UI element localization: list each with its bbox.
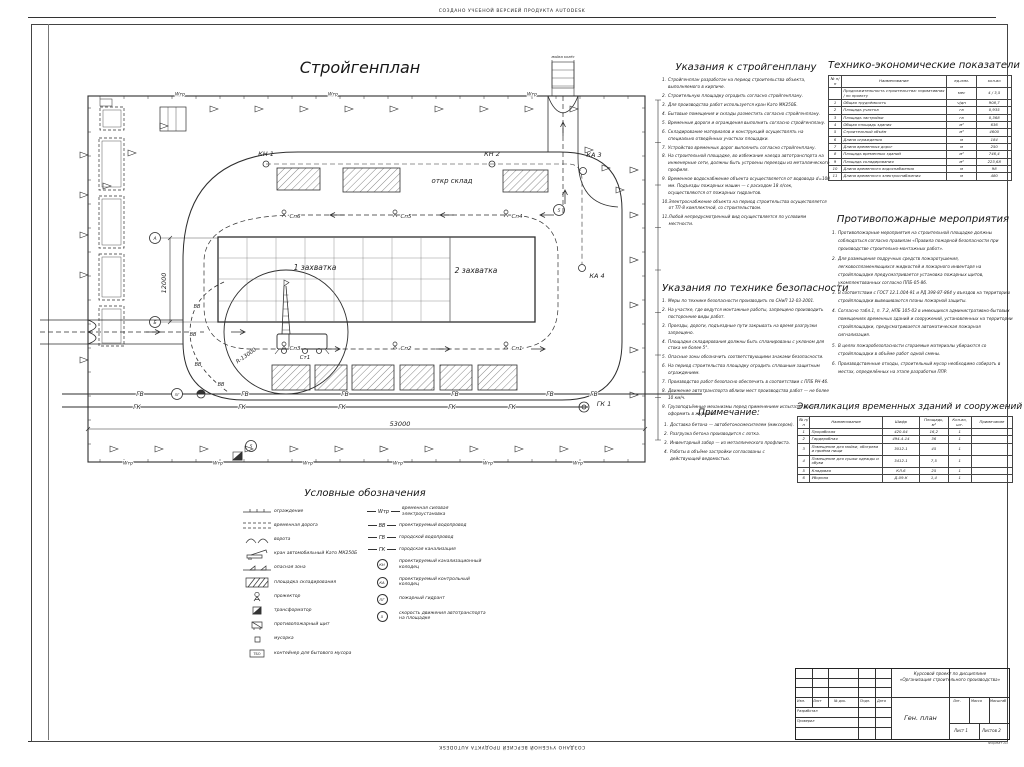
wtr-label: Wтр [527,92,537,98]
table-cell: 1 [798,429,810,436]
table-cell: га [946,114,977,121]
zone1-label: 1 захватка [294,263,337,272]
list-item: 6.Складирование материалов и конструкций… [662,129,830,143]
well-kn1-label: КН 1 [258,150,274,158]
legend-symbol: ПГ [365,594,399,605]
table-cell: 11 [829,173,842,180]
legend-label: ворота [274,537,290,543]
storage-icon [242,577,272,588]
table-cell: 1,4 [920,475,948,482]
legend-label: противопожарный щит [274,622,330,628]
temp-cabin-inner [102,257,121,297]
legend-item: КНпроектируемый канализационный колодец [365,559,490,570]
well-gk1-label: ГК 1 [597,400,611,408]
legend-symbol: ТБО [240,648,274,659]
ukazaniya-list: 1.Стройгенплан разработан на период стро… [662,77,830,228]
legend-label: городская канализация [399,547,456,553]
table-cell: 908,7 [977,100,1012,107]
legend-symbol [240,534,274,545]
table-row: 3Площадь застройкига0,368 [829,114,1012,121]
table-cell: Общая площадь здания [842,122,947,129]
table-cell: 25 [920,467,948,474]
table-cell: 250 [977,144,1012,151]
table-row: 10Длина временного водоснабжениям98 [829,166,1012,173]
table-cell: 16,2 [920,429,948,436]
transformer-fill [233,452,242,460]
well-kn2-label: КН 2 [484,150,500,158]
table-cell: 2 [798,436,810,443]
gv-label: ГВ [241,391,248,398]
table-row: 4Общая площадь зданиям²636 [829,122,1012,129]
table-cell: Площадь участка [842,107,947,114]
table-cell: 223,68 [977,158,1012,165]
floodlight-icon [242,591,272,602]
legend-code: ГВ [366,535,398,541]
table-cell: Уборная [810,475,882,482]
title-block: Изм. Лист № док. Подп. Дата Разработал П… [795,668,1010,740]
gk-label: ГК [508,404,516,411]
traffic-arrow [561,122,566,136]
legend-symbol [240,549,274,560]
dim-height-label: 12000 [160,273,168,294]
floodlight-icon [393,214,397,217]
wtr-label: Wтр [573,461,583,467]
table-cell: 184 [977,136,1012,143]
table-row: Продолжительность строительства: нормати… [829,88,1012,100]
explication-table: № п/пНаименованиеШифрПлощадь, м²Кол-во, … [797,416,1013,483]
legend-item: ПГпожарный гидрант [365,594,490,605]
waste-container-icon [100,99,112,106]
legend-code-circle: 5 [377,611,388,622]
legend: Условные обозначения ограждениевременная… [240,488,490,662]
temp-cabin-inner [102,199,121,245]
table-cell: 5 [829,129,842,136]
legend-item: ворота [240,534,365,545]
gv-label: ГВ [546,391,553,398]
gk-label: ГК [448,404,456,411]
legend-symbol: КН [365,559,399,570]
danger-zone-flag [80,192,88,198]
legend-symbol [240,506,274,517]
legend-label: проектируемый контрольный колодец [399,577,490,588]
table-cell [971,429,1012,436]
format-label: Формат А3 [938,741,1008,745]
legend-code-circle: КН [377,559,388,570]
legend-item: ВВпроектируемый водопровод [365,523,490,529]
legend-symbol: Wтр [365,509,402,515]
urn-icon [242,634,272,645]
floodlight-label: Сп1 [512,346,523,352]
table-row: 9Площадь складированиям²223,68 [829,158,1012,165]
danger-zone-flag [570,106,578,112]
stamp-podp: Подп. [860,699,870,703]
open-storage-label: откр склад [432,177,473,185]
list-item: 3.Инвентарный забор — из металлического … [664,440,794,447]
table-cell: 9 [829,158,842,165]
list-item: 7.Устройство временных дорог выполнить с… [662,145,830,152]
list-item: 11.Любой непредусмотренный вид осуществл… [662,214,830,228]
legend-code: Wтр [365,509,402,515]
stamp-ndoc: № док. [834,699,846,703]
legend-label: проектируемый водопровод [399,523,467,529]
axis-top-label: А [152,236,156,242]
table-cell: м² [946,122,977,129]
well-ka3-icon [580,168,587,175]
table-header-cell: Наименование [842,76,947,88]
gv-label: ГВ [341,391,348,398]
table-header-cell: ед.изм. [946,76,977,88]
table-cell: 1 [829,100,842,107]
danger-zone-flag [425,446,433,452]
list-item: 1.Противопожарные мероприятия на строите… [832,229,1014,253]
table-cell: м² [946,151,977,158]
legend-symbol: ГК [365,547,399,553]
danger-zone-flag [480,106,488,112]
traffic-arrow [440,213,454,218]
danger-zone-flag [525,106,533,112]
table-cell [971,436,1012,443]
zone2-label: 2 захватка [455,266,498,275]
list-item: 7.Производство работ безопасно обеспечит… [662,379,832,386]
legend-item: противопожарный щит [240,620,365,631]
crane-radius-label: R-13000 [235,347,258,366]
floodlight-icon [393,342,397,346]
storage-pad [400,365,434,390]
road-centerline [204,215,558,349]
danger-zone-flag [630,302,638,308]
list-item: 1.Стройгенплан разработан на период стро… [662,77,830,91]
table-cell: м [946,166,977,173]
storage-pad [343,168,400,192]
table-cell: Общая трудоёмкость [842,100,947,107]
temp-cabin [100,107,124,130]
table-cell: 4 [798,455,810,467]
temp-cabin [99,196,124,248]
legend-item: кран автомобильный Като МК250Б [240,549,365,560]
list-item: 6.Производственные отходы, строительный … [832,360,1014,376]
table-cell: м² [946,158,977,165]
storage-pad [352,365,394,390]
list-item: 1.Доставка бетона — автобетоносмесителем… [664,422,794,429]
legend-left-column: ограждениевременная дорогаворотакран авт… [240,506,365,662]
temp-cabin [99,138,124,190]
wheel-wash-label: мойка колёс [552,55,575,59]
table-row: 2Гардеробная494-4-14361 [798,436,1013,443]
table-cell: 1 [948,436,971,443]
legend-label: площадка складирования [274,580,336,586]
table-cell: 1 [948,443,971,455]
traffic-arrow [540,213,554,218]
table-cell: 3412-1 [882,455,919,467]
list-item: 5.Опасные зоны обозначить соответствующи… [662,354,832,361]
table-cell: Длина временного водоснабжения [842,166,947,173]
floodlight-icon [504,210,508,214]
safety-list: 1.Меры по технике безопасности производи… [662,298,832,417]
legend-item: ГВгородской водопровод [365,535,490,541]
table-cell: 3012-1 [882,443,919,455]
well-ka3-label: КА 3 [586,151,601,159]
table-header-cell: Наименование [810,417,882,429]
legend-item: опасная зона [240,563,365,574]
table-cell: м³ [946,129,977,136]
danger-zone-flag [630,392,638,398]
table-cell [829,88,842,100]
gv-label: ГВ [451,391,458,398]
vv-label: ВВ [195,362,202,368]
notes-list: 1.Доставка бетона — автобетоносмесителем… [664,422,794,463]
table-cell: 7,5 [920,455,948,467]
danger-zone-flag [80,232,88,238]
legend-code: ВВ [366,523,399,529]
table-cell: м [946,173,977,180]
panel-fire: Противопожарные мероприятия 1.Противопож… [832,214,1014,378]
table-row: 5Строительный объёмм³4600 [829,129,1012,136]
table-row: 7Длина временных дорогм250 [829,144,1012,151]
table-cell: Д-09-К [882,475,919,482]
legend-label: пожарный гидрант [399,596,445,602]
fire-hydrant-fill [197,390,205,394]
traffic-arrow [330,213,344,218]
table-cell: 45 [920,443,948,455]
wtr-label: Wтр [123,461,133,467]
table-cell: 3 [798,443,810,455]
danger-zone-flag [345,106,353,112]
legend-label: опасная зона [274,565,306,571]
wheel-wash-grate [552,70,574,86]
building-outline [218,237,535,322]
gk-label: ГК [338,404,346,411]
legend-label: мусорка [274,636,294,642]
danger-zone-flag [155,446,163,452]
legend-label: ограждение [274,509,303,515]
table-cell: 2 [829,107,842,114]
panel-tep: Технико-экономические показатели № п/пНа… [828,60,1012,181]
well-ka4-icon [579,265,586,272]
truck-crane-icon [275,280,329,354]
danger-zone-flag [630,347,638,353]
temp-cabin-inner [102,309,121,343]
table-cell: 5 [798,467,810,474]
legend-label: проектируемый канализационный колодец [399,559,490,570]
fire-shield-icon [242,620,272,631]
floodlight-icon [504,214,508,217]
gates-icon [242,534,272,545]
legend-item: трансформатор [240,605,365,616]
table-row: 6Длина ограждениям184 [829,136,1012,143]
table-cell [971,455,1012,467]
temp-cabin-inner [102,141,121,187]
stamp-project: Курсовой проект по дисциплине «Организац… [892,671,1008,684]
floodlight-label: Сп4 [512,214,523,220]
danger-zone-flag [290,446,298,452]
table-cell: Помещение для мойки, обогрева и приёма п… [810,443,882,455]
list-item: 8.На строительной площадке, во избежание… [662,153,830,173]
legend-item: ГКгородская канализация [365,547,490,553]
danger-zone-flag [80,357,88,363]
legend-symbol [240,577,274,588]
table-cell: 3 [829,114,842,121]
legend-symbol [240,634,274,645]
fence-icon [242,506,272,517]
table-header-cell: Кол-во, шт. [948,417,971,429]
list-item: 2.На участке, где ведутся монтажные рабо… [662,307,832,321]
danger-zone-flag [380,446,388,452]
table-cell: 4600 [977,129,1012,136]
legend-item: ТБОконтейнер для бытового мусора [240,648,365,659]
list-item: 2.Разгрузка бетона производится с лотка. [664,431,794,438]
legend-label: прожектор [274,594,300,600]
table-row: 2Площадь участкага0,935 [829,107,1012,114]
table-row: 4Помещение для сушки одежды и обуви3412-… [798,455,1013,467]
table-header-cell: № п/п [798,417,810,429]
danger-zone-flag [128,150,136,156]
table-cell: Площадь застройки [842,114,947,121]
table-header-cell: № п/п [829,76,842,88]
stamp-sheet: Лист 1 [954,728,968,733]
danger-zone-flag [300,106,308,112]
table-cell: 98 [977,166,1012,173]
wheel-wash-pad [552,62,574,88]
table-row: 5КладоваяКЛ-6251 [798,467,1013,474]
table-cell: 636 [977,122,1012,129]
table-cell: м [946,144,977,151]
traffic-arrow [231,330,245,335]
data-table: № п/пНаименованиеед.изм.кол-воПродолжите… [828,75,1012,181]
panel-ukazaniya: Указания к стройгенплану 1.Стройгенплан … [662,62,830,230]
floodlight-icon [282,210,286,214]
table-row: 6УборнаяД-09-К1,41 [798,475,1013,482]
stamp-izm: Изм. [797,699,805,703]
table-row: 1Общая трудоёмкостьч/дн908,7 [829,100,1012,107]
legend-label: кран автомобильный Като МК250Б [274,551,357,557]
storage-pad [315,365,347,390]
danger-zone-flag [200,446,208,452]
dim-width-label: 53000 [390,420,411,428]
container-code: ТБО [252,652,260,656]
panel-explication: Экспликация временных зданий и сооружени… [797,402,1013,483]
legend-item: ограждение [240,506,365,517]
legend-right-column: Wтрвременная силовая электроустановкаВВп… [365,506,490,662]
table-cell [971,443,1012,455]
list-item: 5.В целях пожаробезопасности сгораемые м… [832,342,1014,358]
danger-zone-flag [435,106,443,112]
table-cell: 1 [948,467,971,474]
stamp-lit: Лит. [953,699,961,703]
danger-icon [242,563,272,574]
danger-zone-flag [160,123,168,129]
list-item: 3.Для производства работ используется кр… [662,102,830,109]
table-cell: 0,368 [977,114,1012,121]
table-cell: Длина временного электроснабжения [842,173,947,180]
storage-pad [503,170,548,192]
axis-bottom-label: Б [153,320,156,326]
stamp-data: Дата [877,699,886,703]
table-cell: 480 [977,173,1012,180]
danger-zone-flag [605,446,613,452]
list-item: 1.Меры по технике безопасности производи… [662,298,832,305]
table-cell: Длина ограждения [842,136,947,143]
panel-safety: Указания по технике безопасности 1.Меры … [662,283,832,420]
tep-title: Технико-экономические показатели [828,60,1012,71]
legend-symbol: ВВ [365,523,399,529]
table-cell: 1 [948,429,971,436]
table-row: 11Длина временного электроснабжениям480 [829,173,1012,180]
danger-zone-flag [390,106,398,112]
list-item: 9.Временное водоснабжение объекта осущес… [662,176,830,196]
legend-symbol [240,520,274,531]
danger-zone-flag [630,257,638,263]
floodlight-label: Сп3 [290,346,301,352]
table-cell: 4 / 3,5 [977,88,1012,100]
list-item: 2.Строительную площадку оградить согласн… [662,93,830,100]
legend-item: мусорка [240,634,365,645]
danger-zone-flag [335,446,343,452]
table-cell: Строительный объём [842,129,947,136]
vv-label: ВВ [218,382,225,388]
table-row: 3Помещение для мойки, обогрева и приёма … [798,443,1013,455]
legend-symbol: КА [365,577,399,588]
legend-item: КАпроектируемый контрольный колодец [365,577,490,588]
temp-cabin-inner [103,110,121,127]
explication-title: Экспликация временных зданий и сооружени… [797,402,1013,412]
legend-label: городской водопровод [399,535,453,541]
tep-table: № п/пНаименованиеед.изм.кол-воПродолжите… [828,75,1012,181]
legend-code: ГК [366,547,398,553]
drawing-sheet: СОЗДАНО УЧЕБНОЙ ВЕРСИЕЙ ПРОДУКТА AUTODES… [0,0,1024,767]
legend-item: Wтрвременная силовая электроустановка [365,506,490,517]
table-cell: 36 [920,436,948,443]
table-cell: Помещение для сушки одежды и обуви [810,455,882,467]
stamp-doc-title: Ген. план [892,697,949,739]
list-item: 3.Проезды, дороги, подъездные пути закры… [662,323,832,337]
table-header-cell: Площадь, м² [920,417,948,429]
vv-label: ВВ [194,304,201,310]
legend-symbol [240,563,274,574]
legend-item: 5скорость движения автотранспорта на пло… [365,611,490,622]
table-cell: Продолжительность строительства: нормати… [842,88,947,100]
legend-symbol [240,591,274,602]
legend-symbol: 5 [365,611,399,622]
table-cell: м [946,136,977,143]
table-cell [971,467,1012,474]
wtr-label: Wтр [175,92,185,98]
table-cell: 6 [798,475,810,482]
table-cell: ч/дн [946,100,977,107]
traffic-arrow [531,347,545,352]
floodlight-label: Сп2 [401,346,412,352]
table-cell: КЛ-6 [882,467,919,474]
legend-label: временная силовая электроустановка [402,506,490,517]
legend-symbol: ГВ [365,535,399,541]
legend-symbol [240,605,274,616]
table-cell: Прорабская [810,429,882,436]
table-cell: Площадь складирования [842,158,947,165]
table-cell: Площадь временных зданий [842,151,947,158]
speed-sign-1-label: 5 [558,208,561,214]
legend-label: скорость движения автотранспорта на площ… [399,611,490,622]
danger-zone-flag [630,167,638,173]
table-cell: 0,935 [977,107,1012,114]
storage-pad [440,365,472,390]
legend-symbol [240,620,274,631]
list-item: 2.Для размещения подручных средств пожар… [832,255,1014,287]
danger-zone-flag [103,183,111,189]
wtr-label: Wтр [303,461,313,467]
legend-title: Условные обозначения [240,488,490,499]
fire-title: Противопожарные мероприятия [832,214,1014,225]
danger-zone-flag [80,152,88,158]
legend-item: прожектор [240,591,365,602]
